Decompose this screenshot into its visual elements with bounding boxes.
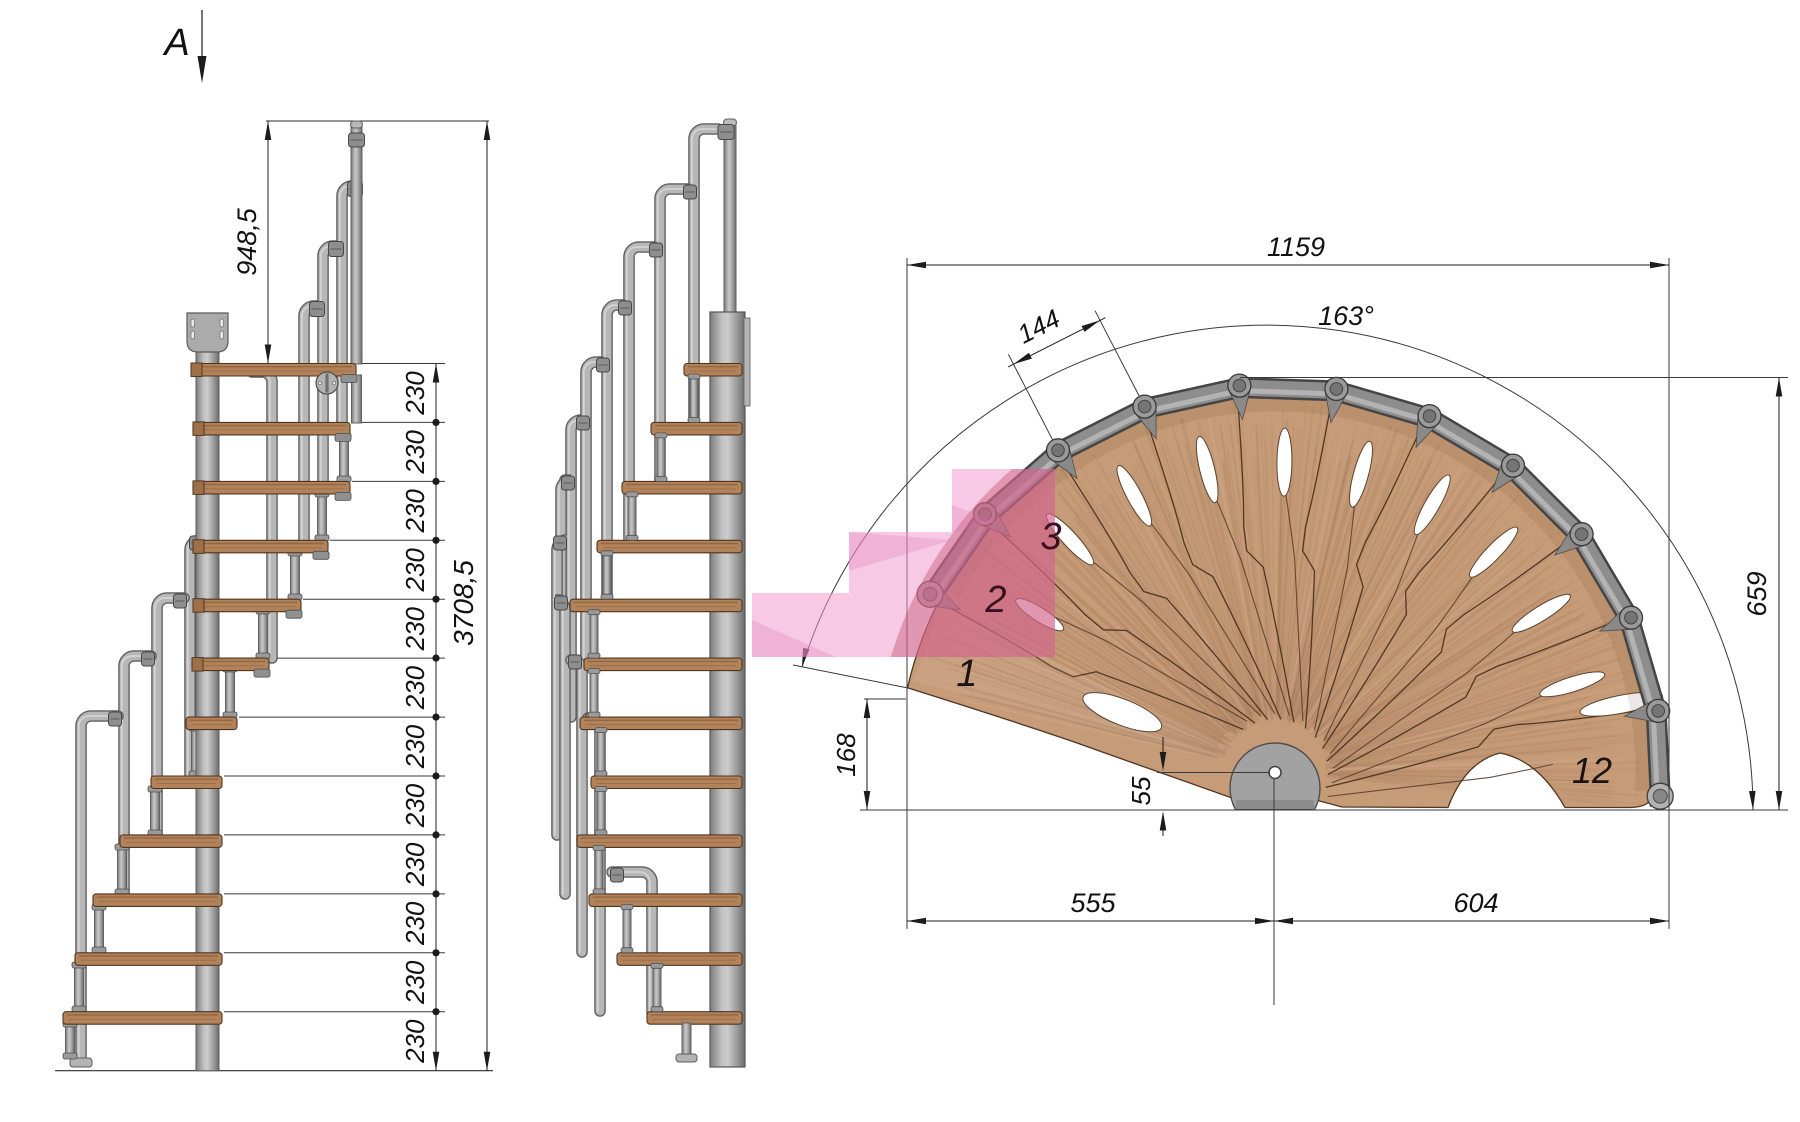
svg-text:3708,5: 3708,5 [448, 560, 479, 646]
svg-text:230: 230 [400, 783, 430, 828]
svg-text:230: 230 [400, 548, 430, 593]
svg-text:3: 3 [1040, 516, 1061, 558]
svg-text:A: A [162, 22, 189, 64]
svg-text:230: 230 [400, 960, 430, 1005]
svg-text:230: 230 [400, 606, 430, 651]
svg-text:230: 230 [400, 724, 430, 769]
svg-text:230: 230 [400, 489, 430, 534]
svg-text:230: 230 [400, 901, 430, 946]
svg-text:168: 168 [831, 733, 861, 777]
svg-text:659: 659 [1742, 571, 1772, 616]
svg-text:12: 12 [1572, 750, 1612, 791]
svg-text:230: 230 [400, 665, 430, 710]
svg-text:230: 230 [400, 371, 430, 416]
svg-text:230: 230 [400, 842, 430, 887]
svg-text:55: 55 [1126, 776, 1156, 805]
svg-text:163°: 163° [1318, 301, 1374, 331]
svg-text:1159: 1159 [1267, 232, 1325, 262]
svg-text:1: 1 [956, 653, 977, 695]
svg-text:2: 2 [984, 579, 1006, 621]
svg-text:604: 604 [1453, 888, 1498, 918]
svg-text:230: 230 [400, 1019, 430, 1064]
svg-text:555: 555 [1070, 888, 1116, 918]
svg-text:948,5: 948,5 [232, 207, 262, 276]
svg-text:230: 230 [400, 430, 430, 475]
